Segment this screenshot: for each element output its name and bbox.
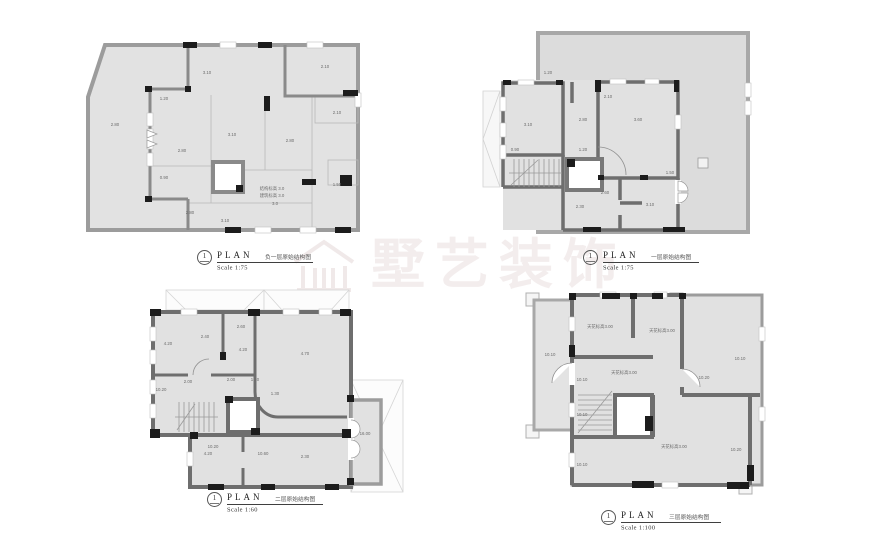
dim-label: 10.60 — [258, 452, 269, 456]
dim-label: 3.10 — [203, 71, 211, 75]
plan-2-titleblock: 1 PLAN 一层原始结构图 Scale 1:75 — [583, 250, 707, 273]
dim-label: 2.80 — [186, 211, 194, 215]
plan-1-basement: 2.803.102.101.202.803.102.802.101.500.90… — [85, 33, 385, 247]
dim-label: 1.50 — [666, 171, 674, 175]
dim-label: 2.80 — [178, 149, 186, 153]
dim-label: 2.80 — [579, 118, 587, 122]
plan-4-third-floor: 天花标高3.00天花标高3.00天花标高3.00天花标高3.0010.1010.… — [512, 285, 778, 507]
outer-wall — [88, 45, 358, 230]
dim-label: 1.20 — [251, 378, 259, 382]
plan-caption: 负一层原始结构图 — [265, 253, 311, 261]
detail-marker: 1 — [197, 250, 212, 265]
plan-label: PLAN — [217, 250, 253, 260]
dim-label: 1.20 — [579, 148, 587, 152]
dim-label: 2.60 — [601, 191, 609, 195]
dim-label: 10.20 — [699, 376, 710, 380]
dim-label: 10.10 — [577, 463, 588, 467]
dim-label: 10.20 — [208, 445, 219, 449]
detail-marker: 1 — [583, 250, 598, 265]
plan-caption: 一层原始结构图 — [651, 253, 691, 261]
dim-label: 1.20 — [544, 71, 552, 75]
stair-void — [213, 162, 243, 192]
dim-label: 结构标高 3.0 — [260, 187, 285, 191]
dim-label: 10.10 — [735, 357, 746, 361]
plan-1-drawing — [85, 33, 385, 247]
dim-label: 10.10 — [545, 353, 556, 357]
detail-number: 1 — [213, 495, 217, 502]
dim-label: 4.20 — [164, 342, 172, 346]
stair-void — [615, 395, 653, 437]
dim-label: 10.10 — [577, 413, 588, 417]
dim-label: 2.10 — [333, 111, 341, 115]
dim-label: 3.10 — [228, 133, 236, 137]
dim-label: 2.30 — [576, 205, 584, 209]
plan-label: PLAN — [603, 250, 639, 260]
plan-4-drawing — [512, 285, 778, 507]
dim-label: 2.40 — [201, 335, 209, 339]
dim-label: 天花标高3.00 — [661, 445, 687, 449]
dim-label: 天花标高3.00 — [587, 325, 613, 329]
awning-outline — [483, 91, 500, 187]
dim-label: 建筑标高 3.0 — [260, 194, 285, 198]
dim-label: 3.10 — [646, 203, 654, 207]
plan-2-drawing — [480, 25, 770, 237]
detail-number: 1 — [607, 513, 611, 520]
dim-label: 3.60 — [634, 118, 642, 122]
plan-caption: 二层原始结构图 — [275, 495, 315, 503]
dim-label: 10.20 — [731, 448, 742, 452]
dim-label: 1.20 — [160, 97, 168, 101]
dim-label: 2.30 — [301, 455, 309, 459]
dim-label: 2.00 — [227, 378, 235, 382]
dim-label: 0.90 — [511, 148, 519, 152]
dim-label: 3.0 — [272, 202, 278, 206]
plan-label: PLAN — [227, 492, 263, 502]
dim-label: 4.20 — [239, 348, 247, 352]
plan-scale: Scale 1:100 — [621, 524, 704, 531]
detail-marker: 1 — [601, 510, 616, 525]
dim-label: 10.20 — [156, 388, 167, 392]
plan-label: PLAN — [621, 510, 657, 520]
dim-label: 3.10 — [524, 123, 532, 127]
detail-marker: 1 — [207, 492, 222, 507]
floorplan-sheet: 墅艺装饰 — [0, 0, 877, 540]
plan-3-drawing — [133, 282, 423, 494]
detail-number: 1 — [203, 253, 207, 260]
dim-label: 2.80 — [286, 139, 294, 143]
balcony — [348, 400, 381, 484]
plan-scale: Scale 1:75 — [217, 264, 306, 271]
dim-label: 2.60 — [237, 325, 245, 329]
dim-label: 天花标高3.00 — [649, 329, 675, 333]
dim-label: 3.10 — [221, 219, 229, 223]
dim-label: 16.00 — [360, 432, 371, 436]
stair-void — [567, 159, 602, 190]
dim-label: 1.50 — [333, 183, 341, 187]
dim-label: 1.30 — [271, 392, 279, 396]
dim-label: 2.10 — [321, 65, 329, 69]
plan-1-titleblock: 1 PLAN 负一层原始结构图 Scale 1:75 — [197, 250, 329, 273]
dim-label: 天花标高3.00 — [611, 371, 637, 375]
plan-4-titleblock: 1 PLAN 三层原始结构图 Scale 1:100 — [601, 510, 725, 533]
plan-caption: 三层原始结构图 — [669, 513, 709, 521]
dim-label: 4.70 — [301, 352, 309, 356]
dim-label: 4.20 — [204, 452, 212, 456]
detail-number: 1 — [589, 253, 593, 260]
plan-2-first-floor: 3.101.202.803.601.202.303.101.502.100.90… — [480, 25, 770, 237]
outer-boundary — [572, 295, 762, 485]
stair-void — [225, 396, 260, 435]
plan-scale: Scale 1:60 — [227, 506, 310, 513]
dim-label: 2.00 — [184, 380, 192, 384]
dim-label: 2.10 — [604, 95, 612, 99]
dim-label: 0.90 — [160, 176, 168, 180]
plan-3-second-floor: 4.202.402.604.204.7010.202.002.001.201.3… — [133, 282, 423, 494]
plan-scale: Scale 1:75 — [603, 264, 686, 271]
plan-3-titleblock: 1 PLAN 二层原始结构图 Scale 1:60 — [207, 492, 331, 515]
dim-label: 10.10 — [577, 378, 588, 382]
dim-label: 2.80 — [111, 123, 119, 127]
